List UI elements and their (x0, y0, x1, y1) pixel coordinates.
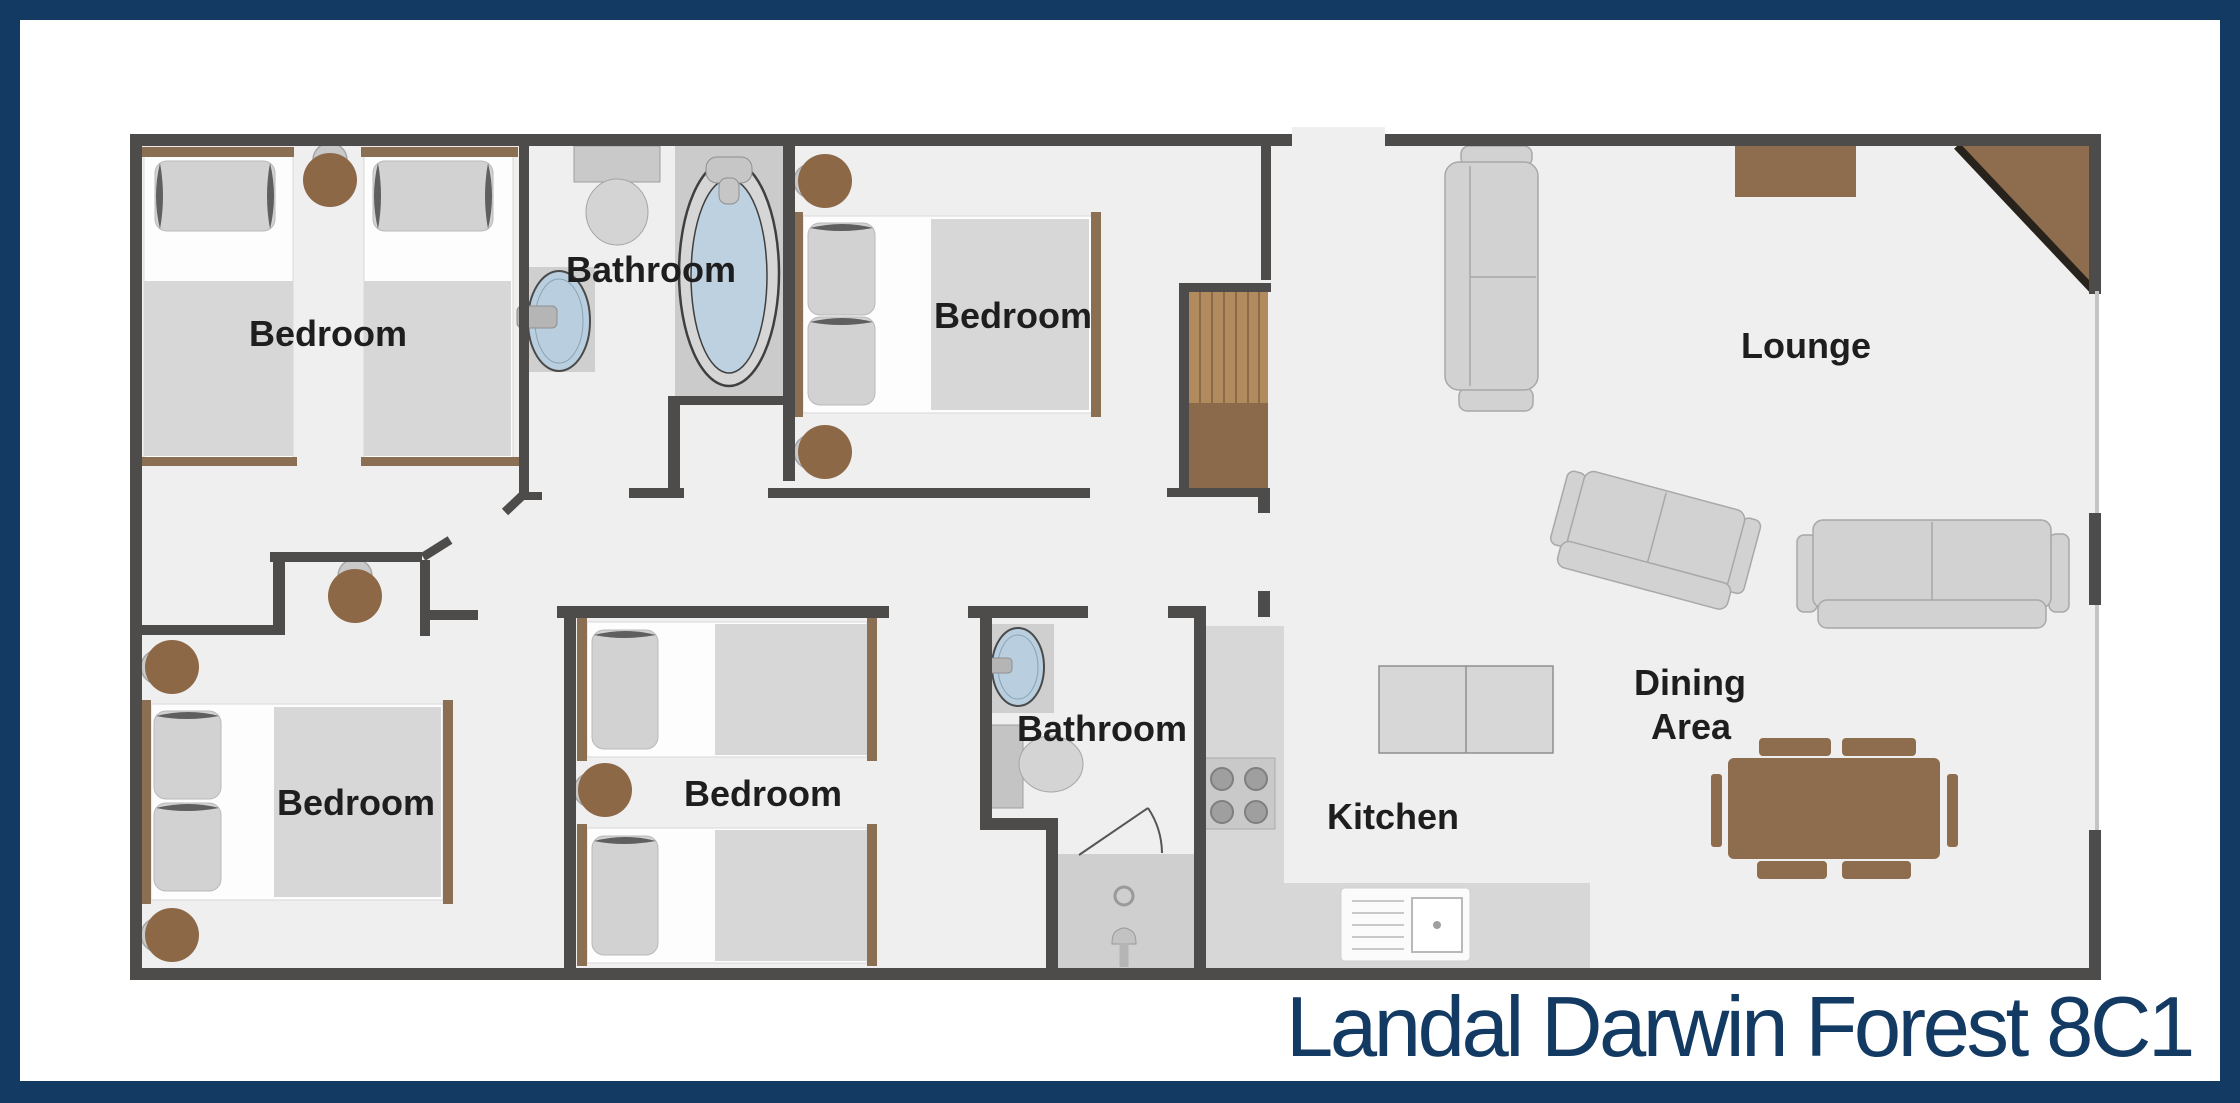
svg-text:Dining: Dining (1634, 662, 1746, 703)
svg-text:Kitchen: Kitchen (1327, 796, 1459, 837)
svg-text:Bathroom: Bathroom (1017, 708, 1187, 749)
svg-text:Landal Darwin Forest 8C1: Landal Darwin Forest 8C1 (1286, 980, 2192, 1075)
svg-text:Bathroom: Bathroom (566, 249, 736, 290)
svg-text:Lounge: Lounge (1741, 325, 1871, 366)
svg-text:Bedroom: Bedroom (934, 295, 1092, 336)
svg-text:Bedroom: Bedroom (684, 773, 842, 814)
svg-text:Bedroom: Bedroom (249, 313, 407, 354)
svg-text:Area: Area (1651, 706, 1732, 747)
svg-text:Bedroom: Bedroom (277, 782, 435, 823)
